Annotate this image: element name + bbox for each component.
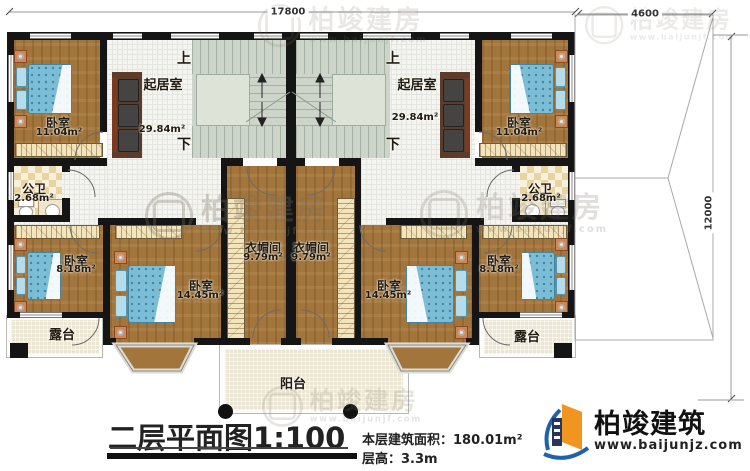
brand-name: 柏竣建筑 — [594, 402, 706, 441]
room-area: 2.68m² — [14, 193, 53, 204]
roof-outline — [575, 15, 713, 340]
plan-title: 二层平面图1:100 — [108, 415, 345, 457]
dimension-depth: 12000 — [704, 193, 715, 234]
room-area: 9.79m² — [291, 252, 330, 263]
brand-logo-icon — [540, 398, 594, 466]
room-area: 14.45m² — [177, 290, 223, 301]
floor-plan-canvas: 17800 4600 12000 上 下 上 下 起居室 29.84m² 起居室… — [0, 0, 750, 471]
title-underline-bar — [107, 453, 357, 459]
floor-area-row: 本层建筑面积：180.01m² — [362, 429, 522, 448]
room-area: 8.18m² — [479, 264, 518, 275]
brand-website: www.baijunjz.com — [594, 438, 743, 453]
room-label: 起居室 — [397, 74, 436, 93]
stair-up-label: 上 — [386, 48, 400, 68]
room-area: 2.68m² — [521, 193, 560, 204]
title-underline — [110, 447, 348, 449]
stair-down-label: 下 — [177, 134, 191, 154]
room-area: 11.04m² — [36, 127, 82, 138]
stair-down-arrow — [258, 102, 324, 126]
room-area: 11.04m² — [496, 127, 542, 138]
stair-down-label: 下 — [386, 134, 400, 154]
dimension-right-wing: 4600 — [628, 9, 662, 20]
room-label: 起居室 — [143, 74, 182, 93]
floor-area-value: 180.01m² — [453, 433, 522, 448]
room-label: 阳台 — [280, 373, 306, 392]
room-label: 露台 — [514, 326, 540, 345]
plan-linework — [0, 0, 750, 471]
plan-scale: 1:100 — [253, 421, 345, 455]
floor-height-label: 层高： — [362, 452, 401, 467]
room-area: 8.18m² — [56, 264, 95, 275]
stair-up-label: 上 — [177, 48, 191, 68]
bay-windows — [116, 345, 466, 371]
dimension-total-width: 17800 — [268, 7, 309, 18]
floor-height-row: 层高：3.3m — [362, 448, 438, 467]
room-area: 29.84m² — [392, 112, 438, 123]
room-area: 9.79m² — [243, 252, 282, 263]
floor-area-label: 本层建筑面积： — [362, 433, 453, 448]
room-label: 露台 — [49, 324, 75, 343]
stair-up-arrow — [258, 74, 324, 98]
room-area: 14.45m² — [365, 290, 411, 301]
plan-title-text: 二层平面图 — [108, 421, 253, 455]
floor-height-value: 3.3m — [401, 452, 438, 467]
door-arcs — [68, 132, 514, 345]
room-area: 29.84m² — [139, 124, 185, 135]
stair-annotations — [246, 74, 336, 126]
